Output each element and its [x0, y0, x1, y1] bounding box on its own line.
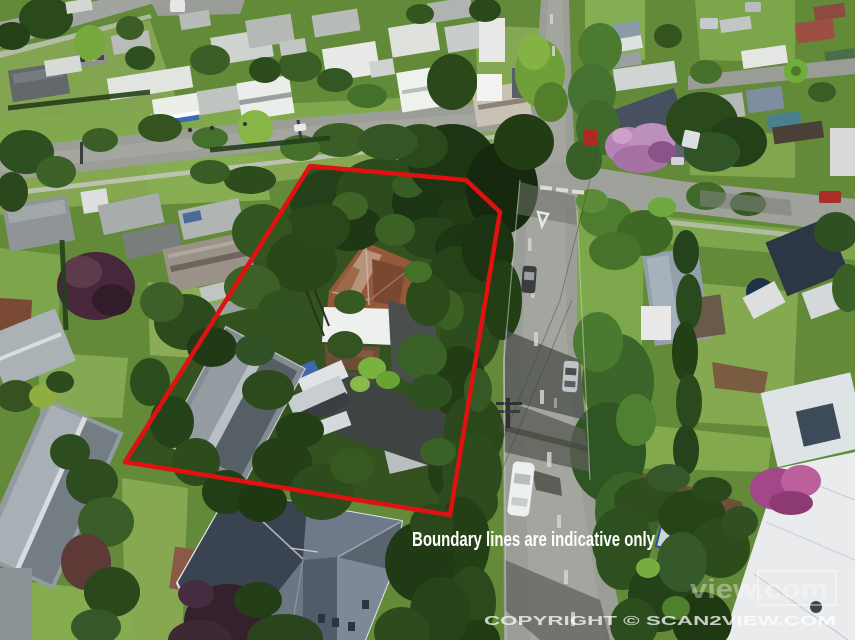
svg-text:Boundary lines are indicative: Boundary lines are indicative only: [412, 528, 655, 551]
svg-text:COPYRIGHT © SCAN2VIEW.COM: COPYRIGHT © SCAN2VIEW.COM: [484, 614, 836, 628]
svg-text:view.com: view.com: [690, 574, 828, 604]
